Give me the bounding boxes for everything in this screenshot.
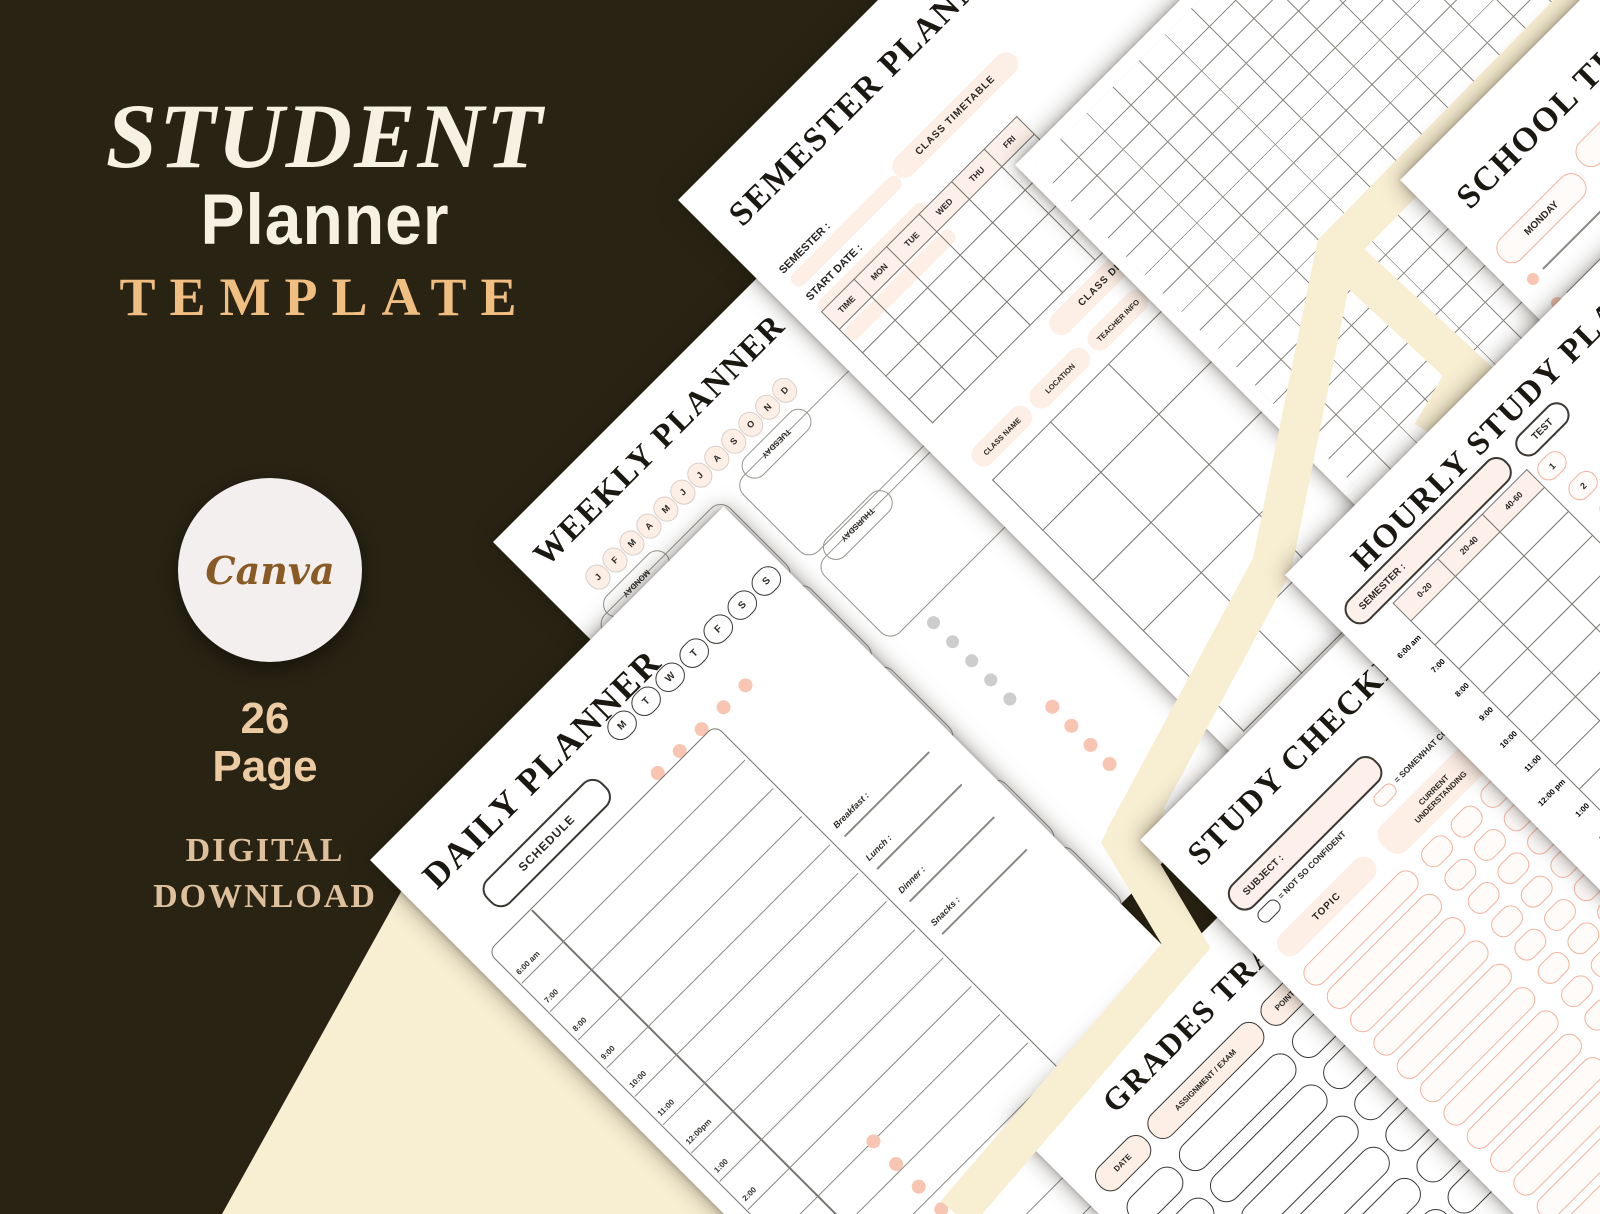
day-dot <box>736 675 756 695</box>
hero-text-block: STUDENT Planner TEMPLATE <box>40 90 610 328</box>
page-count: 26 Page <box>140 695 390 792</box>
test-number: 1 <box>1532 446 1571 485</box>
page-count-word: Page <box>140 743 390 791</box>
bullet-dot <box>1001 690 1019 708</box>
hero-title-template: TEMPLATE <box>40 266 610 328</box>
bullet-dot <box>1042 697 1062 717</box>
meal-label: Snacks : <box>929 895 962 928</box>
test-number: 2 <box>1564 466 1600 505</box>
bullet-dot <box>1081 735 1101 755</box>
hero-title-planner: Planner <box>40 179 610 261</box>
hero-title-student: STUDENT <box>40 90 610 182</box>
canva-label: Canva <box>205 548 334 593</box>
meal-label: Dinner : <box>896 864 927 895</box>
bullet-dot <box>982 671 1000 689</box>
download-line: DOWNLOAD <box>95 874 435 920</box>
day-dot <box>714 697 734 717</box>
page-count-number: 26 <box>140 695 390 743</box>
meal-line <box>909 816 995 902</box>
test-number: 3 <box>1595 486 1600 525</box>
meal-line <box>941 849 1027 935</box>
bullet-dot <box>1062 716 1082 736</box>
canva-badge: Canva <box>178 478 362 662</box>
digital-download-label: DIGITAL DOWNLOAD <box>95 828 435 920</box>
digital-line: DIGITAL <box>95 828 435 874</box>
check-cell <box>1563 918 1600 959</box>
meal-line <box>844 751 930 837</box>
bullet-dot <box>924 613 942 631</box>
meal-label: Breakfast : <box>831 790 871 830</box>
bullet-dot <box>1100 754 1120 774</box>
bullet-dot <box>963 652 981 670</box>
bullet-dot <box>943 633 961 651</box>
listing-image: { "hero":{"title1":"STUDENT","title2":"P… <box>0 0 1600 1214</box>
line-bullet <box>1524 271 1541 288</box>
meal-line <box>876 784 962 870</box>
